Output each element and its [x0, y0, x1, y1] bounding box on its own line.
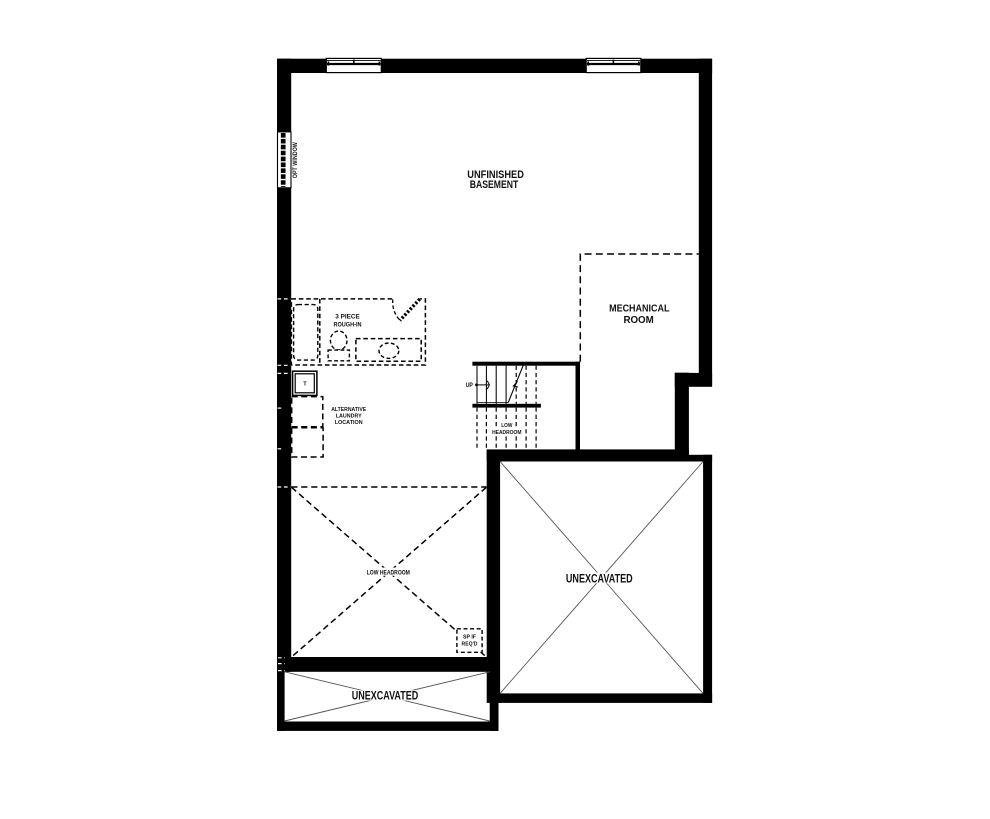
svg-text:UP: UP — [466, 383, 473, 389]
svg-text:ROUGH-IN: ROUGH-IN — [334, 321, 362, 328]
svg-text:UNEXCAVATED: UNEXCAVATED — [566, 571, 633, 585]
svg-text:LOCATION: LOCATION — [335, 420, 363, 426]
svg-text:3 PIECE: 3 PIECE — [335, 313, 360, 320]
svg-text:LOW HEADROOM: LOW HEADROOM — [367, 569, 410, 576]
svg-text:UNEXCAVATED: UNEXCAVATED — [352, 689, 419, 703]
svg-text:T: T — [303, 381, 307, 387]
svg-text:ALTERNATIVE: ALTERNATIVE — [331, 407, 366, 413]
svg-text:HEADROOM: HEADROOM — [492, 430, 522, 436]
svg-text:MECHANICAL: MECHANICAL — [609, 303, 669, 314]
svg-text:LAUNDRY: LAUNDRY — [336, 414, 362, 420]
svg-text:OPT WINDOW: OPT WINDOW — [293, 142, 299, 178]
svg-text:LOW: LOW — [501, 423, 513, 429]
svg-text:BASEMENT: BASEMENT — [470, 179, 519, 191]
svg-text:SP IF: SP IF — [463, 635, 476, 641]
svg-text:ROOM: ROOM — [623, 315, 653, 326]
svg-text:REQ'D: REQ'D — [462, 642, 478, 648]
